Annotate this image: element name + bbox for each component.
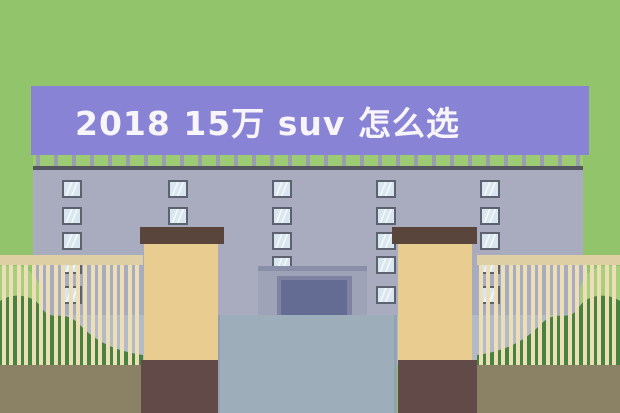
- ground-right: [477, 365, 620, 413]
- railing-post: [576, 155, 580, 166]
- railing-post: [558, 155, 562, 166]
- railing-post: [432, 155, 436, 166]
- entrance-portal: [258, 266, 367, 319]
- railing-post: [252, 155, 256, 166]
- railing-post: [324, 155, 328, 166]
- bush-dark-right: [477, 255, 620, 365]
- railing-post: [540, 155, 544, 166]
- railing-post: [504, 155, 508, 166]
- gate-pillar-right-cap: [392, 227, 477, 244]
- railing-post: [522, 155, 526, 166]
- railing-post: [306, 155, 310, 166]
- railing-post: [90, 155, 94, 166]
- entrance-lintel: [258, 266, 367, 271]
- railing-post: [234, 155, 238, 166]
- gate-pillar-left-base: [141, 360, 218, 413]
- bush-dark-left: [0, 255, 143, 365]
- driveway-edge-right: [394, 315, 397, 413]
- railing-post: [450, 155, 454, 166]
- railing-post: [36, 155, 40, 166]
- fence-rail-right: [477, 255, 620, 265]
- railing-post: [162, 155, 166, 166]
- driveway: [217, 315, 397, 413]
- railing-post: [486, 155, 490, 166]
- gate-pillar-right-shaft: [398, 244, 472, 360]
- roof-railing: [33, 155, 583, 166]
- railing-post: [360, 155, 364, 166]
- banner-title-text: 2018 15万 suv 怎么选: [31, 97, 460, 145]
- railing-post: [144, 155, 148, 166]
- railing-post: [378, 155, 382, 166]
- ground-left: [0, 365, 141, 413]
- gate-pillar-left-shaft: [144, 244, 218, 360]
- entrance-door: [281, 280, 347, 319]
- railing-post: [180, 155, 184, 166]
- railing-post: [342, 155, 346, 166]
- railing-post: [126, 155, 130, 166]
- railing-post: [216, 155, 220, 166]
- title-banner: 2018 15万 suv 怎么选: [31, 86, 589, 155]
- railing-post: [288, 155, 292, 166]
- railing-post: [72, 155, 76, 166]
- fence-rail-left: [0, 255, 143, 265]
- railing-post: [108, 155, 112, 166]
- railing-post: [270, 155, 274, 166]
- railing-post: [468, 155, 472, 166]
- railing-post: [198, 155, 202, 166]
- gate-pillar-right-base: [398, 360, 477, 413]
- railing-post: [396, 155, 400, 166]
- railing-post: [54, 155, 58, 166]
- illustration-canvas: 2018 15万 suv 怎么选: [0, 0, 620, 413]
- railing-post: [414, 155, 418, 166]
- gate-pillar-left-cap: [140, 227, 224, 244]
